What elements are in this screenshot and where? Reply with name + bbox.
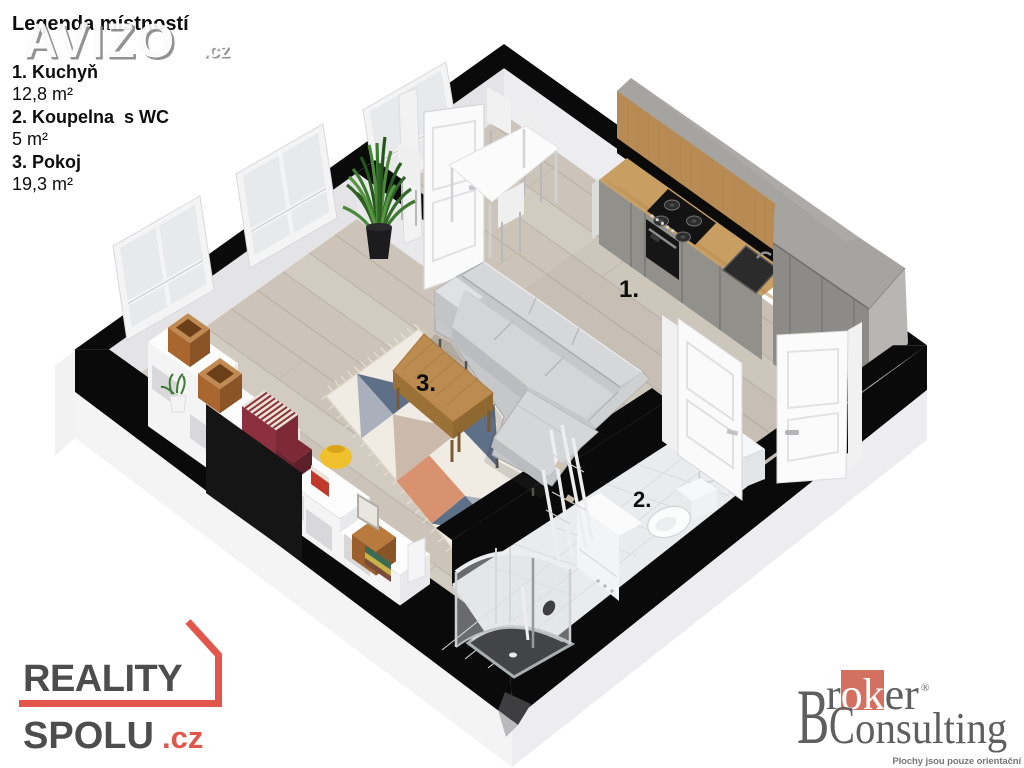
svg-text:1.: 1. xyxy=(619,276,639,303)
svg-text:SPOLU: SPOLU xyxy=(23,715,154,757)
svg-text:3.: 3. xyxy=(416,370,436,397)
svg-text:12,8 m²: 12,8 m² xyxy=(12,84,73,104)
svg-text:.cz: .cz xyxy=(203,40,230,62)
svg-text:onsulting: onsulting xyxy=(855,705,1007,754)
svg-text:B: B xyxy=(797,674,829,761)
svg-text:C: C xyxy=(829,696,855,756)
svg-text:2.: 2. xyxy=(633,487,651,512)
svg-text:5 m²: 5 m² xyxy=(12,129,48,149)
svg-text:REALITY: REALITY xyxy=(23,658,182,700)
svg-text:2. Koupelna s WC: 2. Koupelna s WC xyxy=(12,107,169,127)
svg-text:AVIZO: AVIZO xyxy=(23,15,176,68)
svg-text:3. Pokoj: 3. Pokoj xyxy=(12,152,81,172)
svg-text:Plochy jsou pouze orientační: Plochy jsou pouze orientační xyxy=(892,756,1021,767)
svg-text:®: ® xyxy=(921,682,929,694)
svg-text:19,3 m²: 19,3 m² xyxy=(12,174,73,194)
svg-text:.cz: .cz xyxy=(162,720,203,755)
